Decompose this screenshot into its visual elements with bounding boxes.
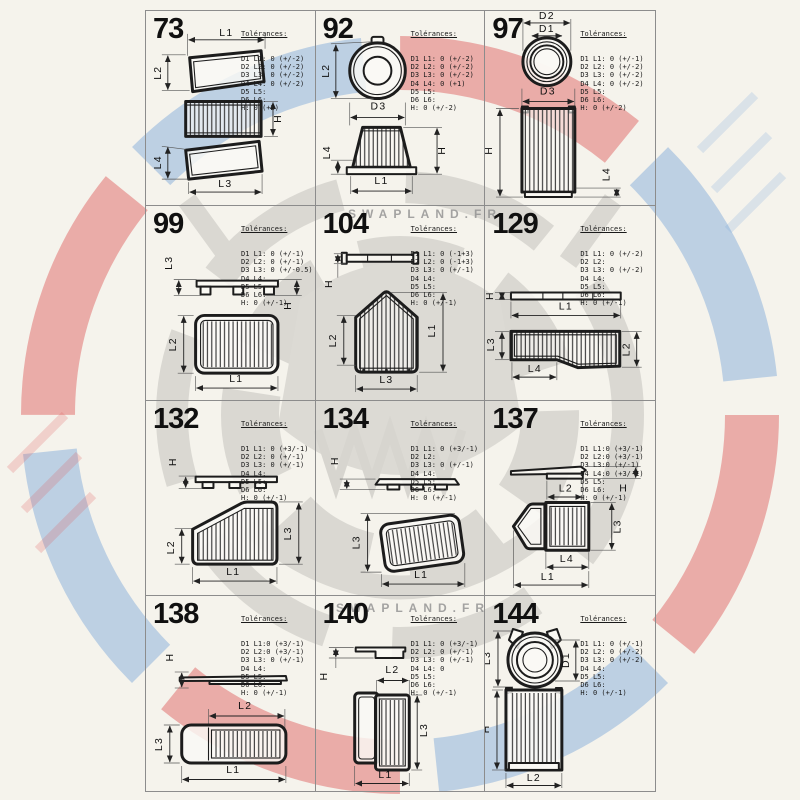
filter-cell: L3 H L2 L1 99 Tolérances: D1 L1: 0 (+/-1… (146, 206, 316, 401)
tolerance-row: D5 L5: (580, 88, 654, 96)
tolerance-row: D3 L3: 0 (+/-0.5) (241, 266, 315, 274)
dimension-label: L2 (385, 665, 399, 676)
tolerance-row: D2 L2: 0 (+/-2) (580, 648, 654, 656)
tolerance-row: D5 L5: (241, 478, 315, 486)
tolerance-row: D1 L1: 0 (+/-1) (580, 640, 654, 648)
dimension-label: H (168, 457, 179, 466)
tolerance-table: Tolérances: D1 L1: 0 (+3/-1)D2 L2:D3 L3:… (411, 404, 485, 519)
dimension-label: L1 (541, 572, 555, 583)
tolerance-rows: D1 L1:0 (+3/-1)D2 L2:0 (+3/-1)D3 L3:0 (+… (580, 445, 654, 502)
tolerance-row: D1 L1: 0 (+3/-1) (241, 445, 315, 453)
filter-cell: D2 D1 D3 H L4 (485, 11, 655, 206)
filter-cell: H L2 L1 L3 132 Tolérances: D1 L1: 0 (+3/… (146, 401, 316, 596)
filter-number: 104 (323, 208, 368, 241)
dimension-label: H (485, 146, 495, 155)
tolerance-row: H: 0 (+/-1) (580, 689, 654, 697)
tolerance-row: D2 L2: 0 (-1+3) (411, 258, 485, 266)
tolerance-row: D4 L4:0 (+3/-1) (580, 470, 654, 478)
tolerance-row: D3 L3:0 (+/-1) (580, 461, 654, 469)
tolerance-rows: D1 L1: 0 (+/-1)D2 L2: 0 (+/-2)D3 L3: 0 (… (580, 55, 654, 112)
dimension-label: L3 (164, 256, 175, 270)
filter-cell: H L1 L3 L2 L4 129 Tolérances: D1 L1: 0 (… (485, 206, 655, 401)
tolerance-row: D3 L3: 0 (+/-2) (241, 71, 315, 79)
tolerance-row: D6 L6: (411, 291, 485, 299)
tolerance-rows: D1 L1: 0 (+3/-1)D2 L2: 0 (+/-1)D3 L3: 0 … (241, 445, 315, 502)
filter-cell: L2 H L3 L4 L1 137 (485, 401, 655, 596)
dimension-label: L2 (153, 66, 164, 80)
tolerance-row: D1 L1:0 (+3/-1) (241, 640, 315, 648)
tolerance-row: D5 L5: (580, 478, 654, 486)
tolerance-title: Tolérances: (580, 30, 654, 38)
dimension-label: L1 (374, 176, 388, 187)
dimension-label: L3 (283, 526, 294, 540)
tolerance-row: D1 L1: 0 (+3/-1) (411, 640, 485, 648)
tolerance-rows: D1 L1: 0 (+/-2)D2 L2: 0 (+/-2)D3 L3: 0 (… (241, 55, 315, 112)
tolerance-row: D2 L2: (580, 258, 654, 266)
tolerance-row: D3 L3: 0 (+/-1) (411, 656, 485, 664)
dimension-label: H (329, 456, 340, 465)
filter-number: 73 (153, 13, 183, 46)
tolerance-row: D6 L6: (241, 681, 315, 689)
tolerance-row: D1 L1: 0 (+3/-1) (411, 445, 485, 453)
tolerance-row: D5 L5: (411, 478, 485, 486)
tolerance-row: D5 L5: (580, 673, 654, 681)
tolerance-row: D4 L4: (580, 275, 654, 283)
tolerance-title: Tolérances: (411, 615, 485, 623)
tolerance-row: D1 L1: 0 (+/-2) (411, 55, 485, 63)
tolerance-row: D1 L1: 0 (+/-1) (241, 250, 315, 258)
tolerance-row: D2 L2: (411, 453, 485, 461)
tolerance-row: D4 L4: 0 (+/-2) (580, 80, 654, 88)
tolerance-title: Tolérances: (241, 615, 315, 623)
tolerance-table: Tolérances: D1 L1: 0 (-1+3)D2 L2: 0 (-1+… (411, 209, 485, 324)
dimension-label: H (319, 672, 330, 681)
tolerance-table: Tolérances: D1 L1: 0 (+/-2)D2 L2:D3 L3: … (580, 209, 654, 324)
dimension-label: D2 (539, 11, 555, 22)
dimension-label: L1 (559, 301, 573, 312)
dimension-label: L2 (622, 342, 633, 356)
dimension-label: L3 (351, 535, 362, 549)
tolerance-row: H: 0 (+/-1) (241, 689, 315, 697)
filter-views: L3 D1 H L2 (485, 629, 580, 788)
tolerance-row: D5 L5: (411, 88, 485, 96)
tolerance-row: D2 L2: 0 (+/-1) (241, 258, 315, 266)
tolerance-row: D2 L2: 0 (+/-1) (411, 648, 485, 656)
tolerance-row: H: 0 (+/-2) (411, 104, 485, 112)
tolerance-row: H: 0 (+/-2) (580, 104, 654, 112)
tolerance-row: D3 L3: 0 (+/-2) (580, 71, 654, 79)
dimension-label: L4 (322, 145, 333, 159)
dimension-label: L2 (321, 64, 332, 78)
filter-grid: L1 L2 H L4 L3 73 (145, 10, 656, 792)
tolerance-row: D5 L5: (241, 283, 315, 291)
tolerance-row: D3 L3: 0 (+/-1) (411, 461, 485, 469)
filter-cell: H L2 L3 L1 140 Tolérances: D1 L1: 0 (+3/… (316, 596, 486, 791)
filter-cell: H L2 L1 L3 104 Tolérances: D1 L1: 0 (-1+… (316, 206, 486, 401)
filter-number: 138 (153, 598, 198, 631)
tolerance-row: D6 L6: (580, 681, 654, 689)
tolerance-row: D3 L3: 0 (+/-2) (411, 71, 485, 79)
dimension-label: L3 (379, 375, 393, 386)
filter-number: 144 (492, 598, 537, 631)
tolerance-row: D6 L6: (411, 96, 485, 104)
tolerance-rows: D1 L1:0 (+3/-1)D2 L2:0 (+3/-1)D3 L3: 0 (… (241, 640, 315, 697)
dimension-label: L2 (559, 484, 573, 495)
tolerance-row: D3 L3: 0 (+/-1) (241, 461, 315, 469)
filter-cell: L1 L2 H L4 L3 73 (146, 11, 316, 206)
dimension-label: L1 (414, 570, 428, 581)
tolerance-rows: D1 L1: 0 (+3/-1)D2 L2:D3 L3: 0 (+/-1)D4 … (411, 445, 485, 502)
dimension-label: D3 (540, 87, 556, 98)
tolerance-row: D1 L1: 0 (+/-2) (241, 55, 315, 63)
tolerance-table: Tolérances: D1 L1: 0 (+/-1)D2 L2: 0 (+/-… (580, 14, 654, 129)
tolerance-table: Tolérances: D1 L1: 0 (+/-2)D2 L2: 0 (+/-… (411, 14, 485, 129)
dimension-label: H (324, 279, 335, 288)
filter-cell: L3 D1 H L2 144 Tolérances: D1 L1: 0 (+/-… (485, 596, 655, 791)
tolerance-row: D2 L2: 0 (+/-2) (411, 63, 485, 71)
tolerance-row: D1 L1: 0 (-1+3) (411, 250, 485, 258)
dimension-label: L1 (226, 567, 240, 578)
tolerance-rows: D1 L1: 0 (+/-1)D2 L2: 0 (+/-2)D3 L3: 0 (… (580, 640, 654, 697)
dimension-label: L2 (328, 333, 339, 347)
dimension-label: L4 (528, 364, 542, 375)
tolerance-row: D6 L6: (411, 681, 485, 689)
tolerance-title: Tolérances: (241, 30, 315, 38)
tolerance-row: D4 L4: 0 (411, 665, 485, 673)
tolerance-row: D1 L1: 0 (+/-1) (580, 55, 654, 63)
tolerance-row: D5 L5: (411, 673, 485, 681)
dimension-label: L4 (560, 554, 574, 565)
dimension-label: D1 (561, 652, 572, 668)
tolerance-table: Tolérances: D1 L1: 0 (+/-1)D2 L2: 0 (+/-… (241, 209, 315, 324)
tolerance-row: D2 L2: 0 (+/-1) (241, 453, 315, 461)
tolerance-row: H: 0 (+2) (241, 104, 315, 112)
tolerance-row: D5 L5: (241, 673, 315, 681)
dimension-label: L1 (229, 374, 243, 385)
dimension-label: L1 (226, 765, 240, 776)
dimension-label: H (165, 653, 176, 662)
dimension-label: L1 (378, 770, 392, 781)
tolerance-row: D1 L1: 0 (+/-2) (580, 250, 654, 258)
tolerance-row: D3 L3: 0 (+/-1) (411, 266, 485, 274)
filter-number: 129 (492, 208, 537, 241)
tolerance-row: H: 0 (+/-1) (411, 494, 485, 502)
filter-number: 92 (323, 13, 353, 46)
filter-cell: H L2 L3 L1 138 Tolérances: D1 L1:0 (+3/-… (146, 596, 316, 791)
tolerance-table: Tolérances: D1 L1: 0 (+3/-1)D2 L2: 0 (+/… (241, 404, 315, 519)
dimension-label: L4 (602, 167, 613, 181)
dimension-label: L1 (219, 28, 233, 39)
dimension-label: L2 (527, 773, 541, 784)
dimension-label: L3 (485, 651, 493, 665)
dimension-label: D1 (539, 24, 555, 35)
tolerance-row: D6 L6: (411, 486, 485, 494)
tolerance-row: D3 L3: 0 (+/-2) (580, 266, 654, 274)
tolerance-row: D6 L6: (241, 291, 315, 299)
dimension-label: H (437, 146, 448, 155)
dimension-label: L3 (154, 737, 165, 751)
tolerance-row: H: 0 (+/-1) (580, 494, 654, 502)
tolerance-row: D6 L6: (580, 486, 654, 494)
dimension-label: H (485, 725, 492, 734)
filter-cell: L2 D3 L4 L1 H 92 Tolérances: D1 L1: (316, 11, 486, 206)
tolerance-row: D6 L6: (580, 96, 654, 104)
tolerance-row: D4 L4: (241, 665, 315, 673)
tolerance-row: D3 L3: 0 (+/-2) (580, 656, 654, 664)
tolerance-title: Tolérances: (411, 30, 485, 38)
tolerance-row: D4 L4: (411, 470, 485, 478)
filter-number: 137 (492, 403, 537, 436)
tolerance-row: D6 L6: (241, 96, 315, 104)
tolerance-table: Tolérances: D1 L1: 0 (+/-1)D2 L2: 0 (+/-… (580, 599, 654, 714)
dimension-label: H (485, 291, 496, 300)
tolerance-row: H: 0 (+/-1) (411, 299, 485, 307)
tolerance-row: D1 L1:0 (+3/-1) (580, 445, 654, 453)
tolerance-row: D4 L4: 0 (+1) (411, 80, 485, 88)
catalog-sheet: { "page": { "background": "#f5f3ec", "gr… (0, 0, 800, 800)
tolerance-row: D5 L5: (241, 88, 315, 96)
dimension-label: L1 (427, 323, 438, 337)
tolerance-row: D5 L5: (580, 283, 654, 291)
tolerance-title: Tolérances: (580, 225, 654, 233)
filter-number: 132 (153, 403, 198, 436)
tolerance-row: D2 L2: 0 (+/-2) (241, 63, 315, 71)
dimension-label: D3 (370, 101, 386, 112)
tolerance-row: H: 0 (+/-1) (580, 299, 654, 307)
tolerance-row: H: 0 (+/-1) (241, 494, 315, 502)
tolerance-row: D2 L2:0 (+3/-1) (580, 453, 654, 461)
tolerance-rows: D1 L1: 0 (-1+3)D2 L2: 0 (-1+3)D3 L3: 0 (… (411, 250, 485, 307)
filter-number: 97 (492, 13, 522, 46)
filter-number: 134 (323, 403, 368, 436)
tolerance-title: Tolérances: (411, 420, 485, 428)
tolerance-row: D4 L4: (241, 470, 315, 478)
filter-number: 99 (153, 208, 183, 241)
dimension-label: L4 (153, 155, 164, 169)
tolerance-table: Tolérances: D1 L1:0 (+3/-1)D2 L2:0 (+3/-… (580, 404, 654, 519)
tolerance-rows: D1 L1: 0 (+/-2)D2 L2: 0 (+/-2)D3 L3: 0 (… (411, 55, 485, 112)
tolerance-row: D4 L4: 0 (+/-2) (241, 80, 315, 88)
tolerance-row: D4 L4: (241, 275, 315, 283)
tolerance-title: Tolérances: (241, 225, 315, 233)
tolerance-row: D3 L3: 0 (+/-1) (241, 656, 315, 664)
tolerance-row: D5 L5: (411, 283, 485, 291)
tolerance-title: Tolérances: (580, 420, 654, 428)
tolerance-row: D2 L2: 0 (+/-2) (580, 63, 654, 71)
tolerance-rows: D1 L1: 0 (+/-2)D2 L2:D3 L3: 0 (+/-2)D4 L… (580, 250, 654, 307)
tolerance-title: Tolérances: (580, 615, 654, 623)
tolerance-title: Tolérances: (241, 420, 315, 428)
tolerance-row: H: 0 (+/-1) (411, 689, 485, 697)
tolerance-row: D4 L4: (411, 275, 485, 283)
dimension-label: L3 (419, 723, 430, 737)
tolerance-title: Tolérances: (411, 225, 485, 233)
tolerance-table: Tolérances: D1 L1: 0 (+/-2)D2 L2: 0 (+/-… (241, 14, 315, 129)
dimension-label: L2 (166, 540, 177, 554)
dimension-label: L3 (486, 337, 497, 351)
filter-number: 140 (323, 598, 368, 631)
dimension-label: L3 (613, 519, 624, 533)
tolerance-row: H: 0 (+/-1) (241, 299, 315, 307)
tolerance-rows: D1 L1: 0 (+/-1)D2 L2: 0 (+/-1)D3 L3: 0 (… (241, 250, 315, 307)
tolerance-table: Tolérances: D1 L1: 0 (+3/-1)D2 L2: 0 (+/… (411, 599, 485, 714)
dimension-label: L2 (168, 337, 179, 351)
dimension-label: L3 (218, 179, 232, 190)
tolerance-table: Tolérances: D1 L1:0 (+3/-1)D2 L2:0 (+3/-… (241, 599, 315, 714)
tolerance-rows: D1 L1: 0 (+3/-1)D2 L2: 0 (+/-1)D3 L3: 0 … (411, 640, 485, 697)
filter-cell: H L3 L1 134 Tolérances: D1 L1: 0 (+3/-1)… (316, 401, 486, 596)
tolerance-row: D2 L2:0 (+3/-1) (241, 648, 315, 656)
tolerance-row: D4 L4: (580, 665, 654, 673)
tolerance-row: D6 L6: (580, 291, 654, 299)
tolerance-row: D6 L6: (241, 486, 315, 494)
